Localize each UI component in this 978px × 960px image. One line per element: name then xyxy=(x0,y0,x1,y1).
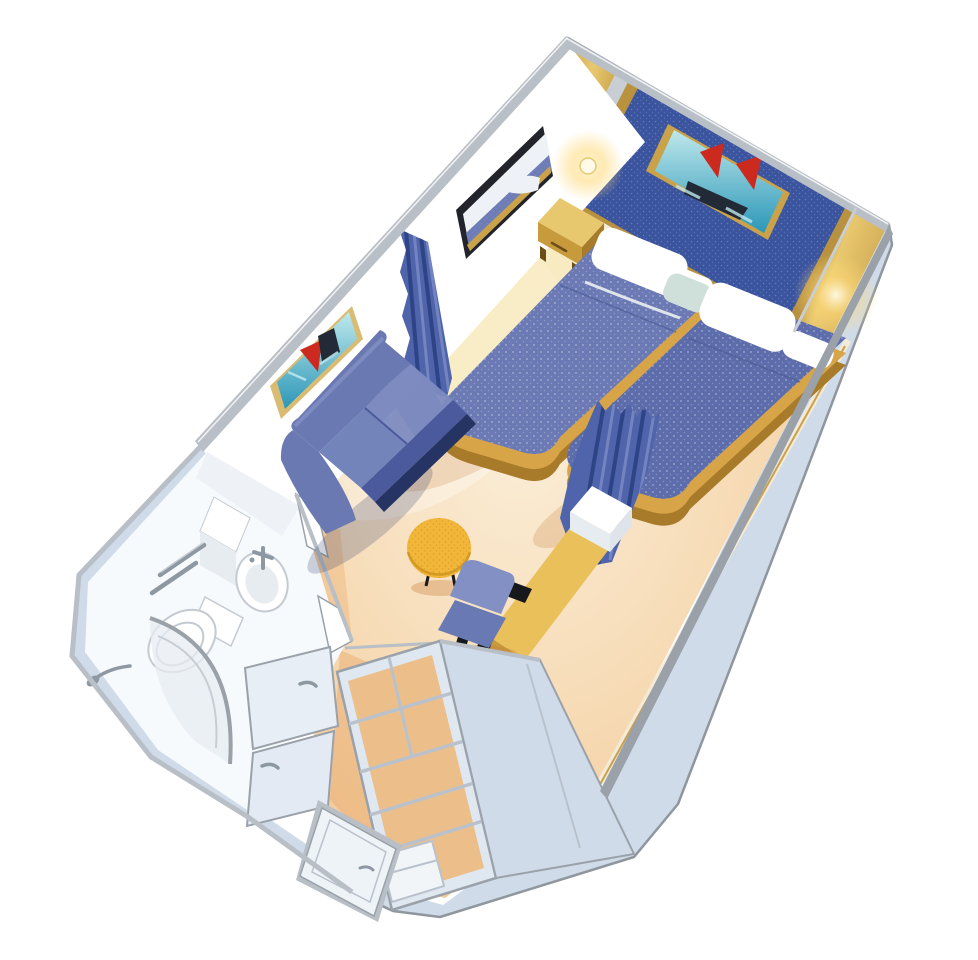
bathroom-door xyxy=(245,647,338,826)
faucet-handle xyxy=(250,558,255,563)
cabin-svg xyxy=(0,0,978,960)
cabin-rendering xyxy=(0,0,978,960)
wall-lamp xyxy=(552,130,624,202)
